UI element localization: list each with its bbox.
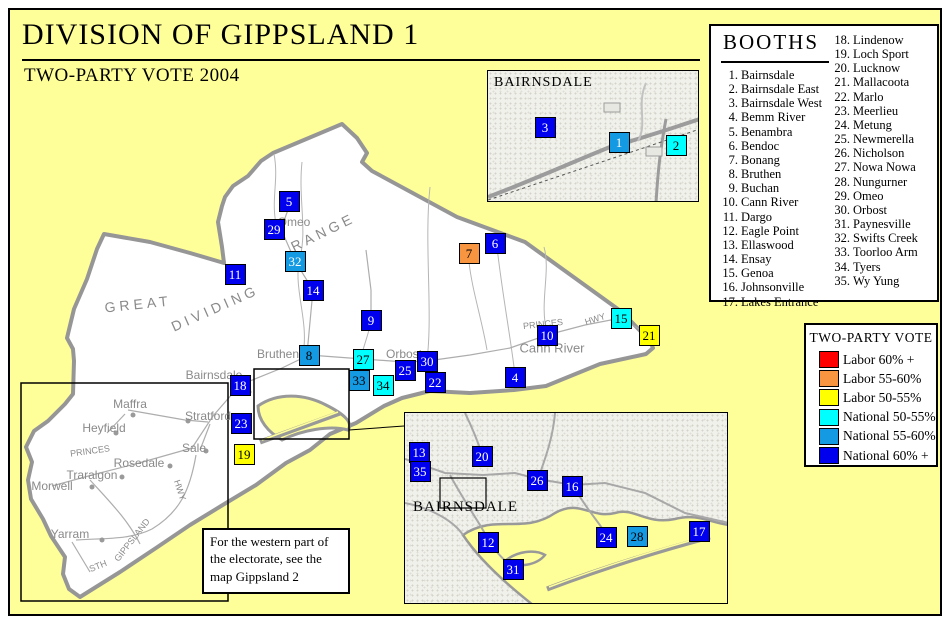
legend-item-nat55: National 55-60% [819,427,936,446]
booth-marker-17: 17 [689,521,710,542]
booth-marker-21: 21 [639,325,660,346]
booth-marker-8: 8 [299,345,320,366]
map-canvas: DIVISION OF GIPPSLAND 1 TWO-PARTY VOTE 2… [8,8,942,616]
booth-marker-2: 2 [666,135,687,156]
booth-marker-12: 12 [478,532,499,553]
map-label: Stratford [185,409,231,423]
booth-marker-14: 14 [303,280,324,301]
booth-marker-31: 31 [503,559,524,580]
booth-marker-15: 15 [611,308,632,329]
booth-list-item: 9.Buchan [717,181,827,195]
booth-list-item: 7.Bonang [717,153,827,167]
legend-label: National 50-55% [843,409,936,425]
booth-marker-22: 22 [425,372,446,393]
booth-list-item: 25.Newmerella [829,132,937,146]
booth-list-item: 3.Bairnsdale West [717,96,827,110]
booth-list-item: 33.Toorloo Arm [829,245,937,259]
booth-list-item: 15.Genoa [717,266,827,280]
legend-label: Labor 60% + [843,352,914,368]
booth-marker-18: 18 [230,375,251,396]
booth-marker-20: 20 [472,446,493,467]
legend-item-nat50: National 50-55% [819,408,936,427]
legend-item-lab60: Labor 60% + [819,350,936,369]
booth-list-item: 10.Cann River [717,195,827,209]
booth-marker-29: 29 [264,219,285,240]
legend-color-chip [819,428,839,445]
booth-list-item: 16.Johnsonville [717,280,827,294]
legend-color-chip [819,409,839,426]
booth-marker-32: 32 [285,251,306,272]
booth-list-item: 17.Lakes Entrance [717,295,827,309]
booth-list-item: 29.Omeo [829,189,937,203]
map-label: Sale [182,441,206,455]
booth-marker-5: 5 [279,191,300,212]
legend-rows: Labor 60% +Labor 55-60%Labor 50-55%Natio… [819,350,936,465]
map-label: Rosedale [114,456,165,470]
booths-panel: BOOTHS 1.Bairnsdale2.Bairnsdale East3.Ba… [709,24,939,302]
booth-list-item: 26.Nicholson [829,146,937,160]
booth-marker-4: 4 [505,367,526,388]
booth-list-item: 6.Bendoc [717,139,827,153]
map-label: Morwell [31,479,72,493]
booth-marker-13: 13 [409,442,430,463]
booth-marker-3: 3 [535,117,556,138]
booth-list-item: 34.Tyers [829,260,937,274]
legend-color-chip [819,370,839,387]
booth-marker-9: 9 [361,310,382,331]
booth-list-item: 20.Lucknow [829,61,937,75]
booth-list-item: 11.Dargo [717,210,827,224]
inset-bottom-title: BAIRNSDALE [413,499,518,516]
legend-item-nat60: National 60% + [819,446,936,465]
booth-list-item: 27.Nowa Nowa [829,160,937,174]
map-label: Maffra [113,397,147,411]
booth-marker-23: 23 [231,413,252,434]
legend-color-chip [819,389,839,406]
legend-color-chip [819,351,839,368]
page-title: DIVISION OF GIPPSLAND 1 [22,18,419,52]
booth-list-item: 8.Bruthen [717,167,827,181]
legend-color-chip [819,447,839,464]
booth-list-item: 19.Loch Sport [829,47,937,61]
booths-column-1: 1.Bairnsdale2.Bairnsdale East3.Bairnsdal… [717,68,827,309]
booth-list-item: 24.Metung [829,118,937,132]
booth-list-item: 18.Lindenow [829,33,937,47]
legend-panel: TWO-PARTY VOTE Labor 60% +Labor 55-60%La… [804,323,938,467]
inset-connector-line [349,426,404,430]
title-underline [22,59,700,61]
legend-label: Labor 50-55% [843,390,921,406]
legend-item-lab50: Labor 50-55% [819,388,936,407]
legend-title: TWO-PARTY VOTE [806,330,936,346]
booth-marker-10: 10 [537,325,558,346]
booth-list-item: 14.Ensay [717,252,827,266]
booth-marker-24: 24 [596,527,617,548]
booth-marker-1: 1 [609,132,630,153]
booth-marker-7: 7 [459,243,480,264]
booth-marker-30: 30 [417,351,438,372]
booth-list-item: 31.Paynesville [829,217,937,231]
inset-bairnsdale-district: BAIRNSDALE [404,412,728,604]
booth-marker-33: 33 [349,370,370,391]
map-label: Traralgon [67,468,118,482]
booth-list-item: 28.Nungurner [829,175,937,189]
booth-marker-11: 11 [225,264,246,285]
booth-list-item: 32.Swifts Creek [829,231,937,245]
booth-marker-27: 27 [353,349,374,370]
booths-column-2: 18.Lindenow19.Loch Sport20.Lucknow21.Mal… [829,33,937,288]
booth-marker-19: 19 [234,444,255,465]
booths-panel-title: BOOTHS [723,30,819,55]
page-subtitle: TWO-PARTY VOTE 2004 [24,65,240,87]
booth-list-item: 23.Meerlieu [829,104,937,118]
western-map-note: For the western part of the electorate, … [202,528,350,594]
booth-list-item: 35.Wy Yung [829,274,937,288]
booth-list-item: 2.Bairnsdale East [717,82,827,96]
booth-list-item: 4.Bemm River [717,110,827,124]
legend-label: National 60% + [843,448,929,464]
booth-list-item: 21.Mallacoota [829,75,937,89]
booth-marker-28: 28 [627,526,648,547]
legend-label: Labor 55-60% [843,371,921,387]
booth-list-item: 13.Ellaswood [717,238,827,252]
legend-label: National 55-60% [843,428,936,444]
booths-title-underline [721,61,829,63]
map-label: Bruthen [257,347,299,361]
booth-list-item: 5.Benambra [717,125,827,139]
booth-list-item: 22.Marlo [829,90,937,104]
booth-marker-25: 25 [395,360,416,381]
booth-list-item: 30.Orbost [829,203,937,217]
booth-list-item: 1.Bairnsdale [717,68,827,82]
booth-marker-26: 26 [527,470,548,491]
map-label: Heyfield [82,421,125,435]
map-label: Yarram [51,527,89,541]
booth-marker-6: 6 [485,233,506,254]
booth-list-item: 12.Eagle Point [717,224,827,238]
booth-marker-16: 16 [562,476,583,497]
booth-marker-35: 35 [410,461,431,482]
inset-top-title: BAIRNSDALE [494,75,593,91]
booth-marker-34: 34 [373,375,394,396]
page: { "title": "DIVISION OF GIPPSLAND 1", "s… [0,0,950,623]
legend-item-lab55: Labor 55-60% [819,369,936,388]
